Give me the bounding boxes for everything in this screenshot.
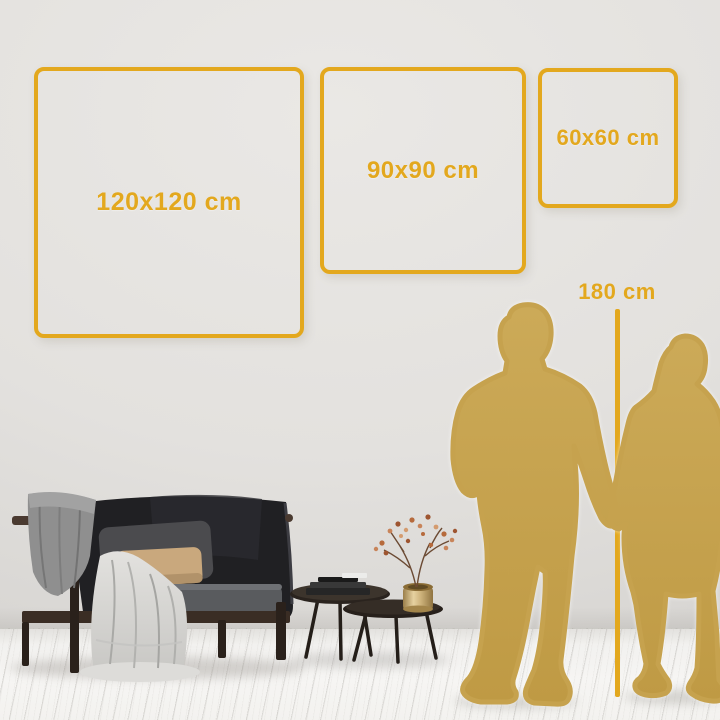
couple-silhouettes [453,305,720,705]
scene-art [0,0,720,720]
wall-art-size-guide: 120x120 cm 90x90 cm 60x60 cm 180 cm [0,0,720,720]
dried-branch [374,514,457,587]
woman-silhouette [610,336,720,701]
coffee-tables [290,514,457,662]
sofa [12,492,293,682]
sofa-wood-peg [285,514,293,522]
brass-vase [403,583,433,613]
man-silhouette [453,305,621,705]
books-stack [306,573,370,595]
blossoms [374,514,457,555]
